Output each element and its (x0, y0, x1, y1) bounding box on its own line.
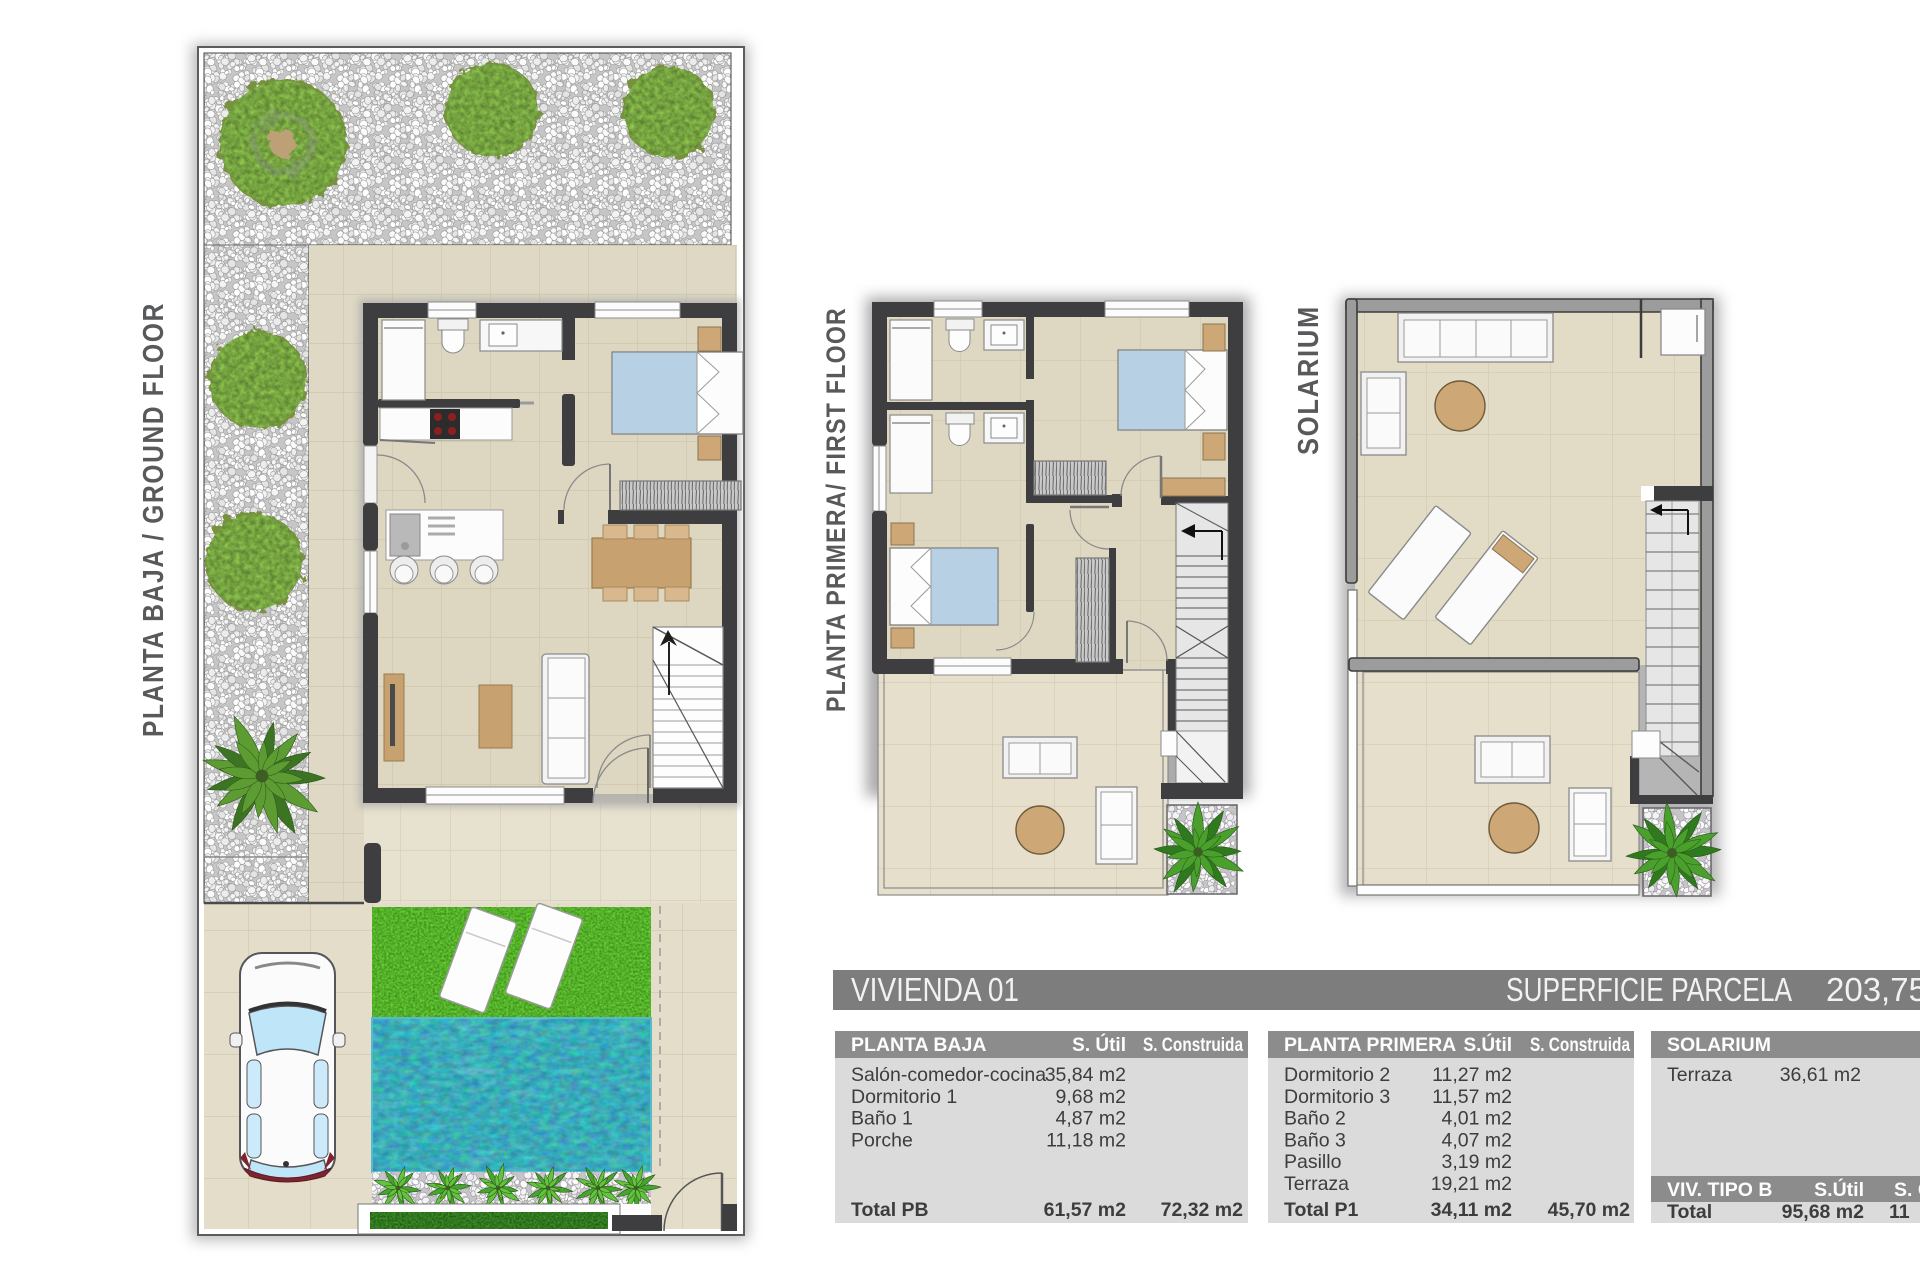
svg-text:Baño 1: Baño 1 (851, 1108, 913, 1130)
svg-text:Total PB: Total PB (851, 1199, 929, 1221)
svg-text:Total P1: Total P1 (1284, 1199, 1359, 1221)
svg-text:11,18 m2: 11,18 m2 (1046, 1129, 1126, 1151)
svg-text:45,70 m2: 45,70 m2 (1548, 1199, 1631, 1221)
svg-text:Baño 2: Baño 2 (1284, 1108, 1346, 1130)
svg-text:11,27 m2: 11,27 m2 (1432, 1064, 1512, 1086)
svg-text:34,11 m2: 34,11 m2 (1431, 1199, 1512, 1221)
svg-text:35,84 m2: 35,84 m2 (1045, 1064, 1126, 1086)
svg-text:PLANTA PRIMERA: PLANTA PRIMERA (1284, 1034, 1456, 1056)
svg-text:Salón-comedor-cocina: Salón-comedor-cocina (851, 1064, 1046, 1086)
svg-text:PLANTA PRIMERA/ FIRST FLOOR: PLANTA PRIMERA/ FIRST FLOOR (821, 307, 851, 712)
svg-text:S.Útil: S.Útil (1814, 1177, 1864, 1201)
svg-text:4,07 m2: 4,07 m2 (1442, 1129, 1512, 1151)
svg-text:S. Co: S. Co (1894, 1179, 1920, 1201)
svg-text:Pasillo: Pasillo (1284, 1151, 1342, 1173)
svg-text:VIVIENDA 01: VIVIENDA 01 (851, 971, 1019, 1008)
svg-text:VIV. TIPO B: VIV. TIPO B (1667, 1179, 1772, 1201)
svg-text:36,61 m2: 36,61 m2 (1780, 1064, 1861, 1086)
svg-text:S.Útil: S.Útil (1463, 1034, 1512, 1056)
svg-text:72,32 m2: 72,32 m2 (1161, 1199, 1244, 1221)
svg-text:61,57 m2: 61,57 m2 (1044, 1199, 1127, 1221)
svg-text:11,57 m2: 11,57 m2 (1432, 1086, 1512, 1108)
svg-text:4,87 m2: 4,87 m2 (1056, 1108, 1126, 1130)
svg-text:Total: Total (1667, 1201, 1712, 1223)
svg-text:Dormitorio 2: Dormitorio 2 (1284, 1064, 1390, 1086)
svg-text:PLANTA BAJA / GROUND FLOOR: PLANTA BAJA / GROUND FLOOR (138, 302, 170, 737)
svg-text:19,21 m2: 19,21 m2 (1431, 1173, 1512, 1195)
svg-text:PLANTA BAJA: PLANTA BAJA (851, 1034, 986, 1056)
svg-text:4,01 m2: 4,01 m2 (1442, 1108, 1512, 1130)
svg-text:9,68 m2: 9,68 m2 (1056, 1086, 1126, 1108)
svg-text:11: 11 (1889, 1201, 1910, 1223)
svg-text:S. Construida: S. Construida (1143, 1035, 1243, 1056)
svg-text:Dormitorio 3: Dormitorio 3 (1284, 1086, 1390, 1108)
svg-text:Terraza: Terraza (1667, 1064, 1732, 1086)
svg-text:95,68 m2: 95,68 m2 (1782, 1201, 1865, 1223)
svg-text:Baño 3: Baño 3 (1284, 1129, 1346, 1151)
svg-text:Dormitorio 1: Dormitorio 1 (851, 1086, 957, 1108)
svg-text:Terraza: Terraza (1284, 1173, 1349, 1195)
svg-text:S. Útil: S. Útil (1072, 1034, 1126, 1056)
svg-text:203,75m: 203,75m (1826, 971, 1920, 1008)
svg-text:3,19 m2: 3,19 m2 (1442, 1151, 1512, 1173)
svg-text:S. Construida: S. Construida (1530, 1035, 1630, 1056)
svg-text:Porche: Porche (851, 1129, 913, 1151)
svg-text:SOLARIUM: SOLARIUM (1667, 1034, 1771, 1056)
svg-text:SOLARIUM: SOLARIUM (1293, 305, 1325, 455)
svg-text:SUPERFICIE PARCELA: SUPERFICIE PARCELA (1506, 971, 1792, 1008)
